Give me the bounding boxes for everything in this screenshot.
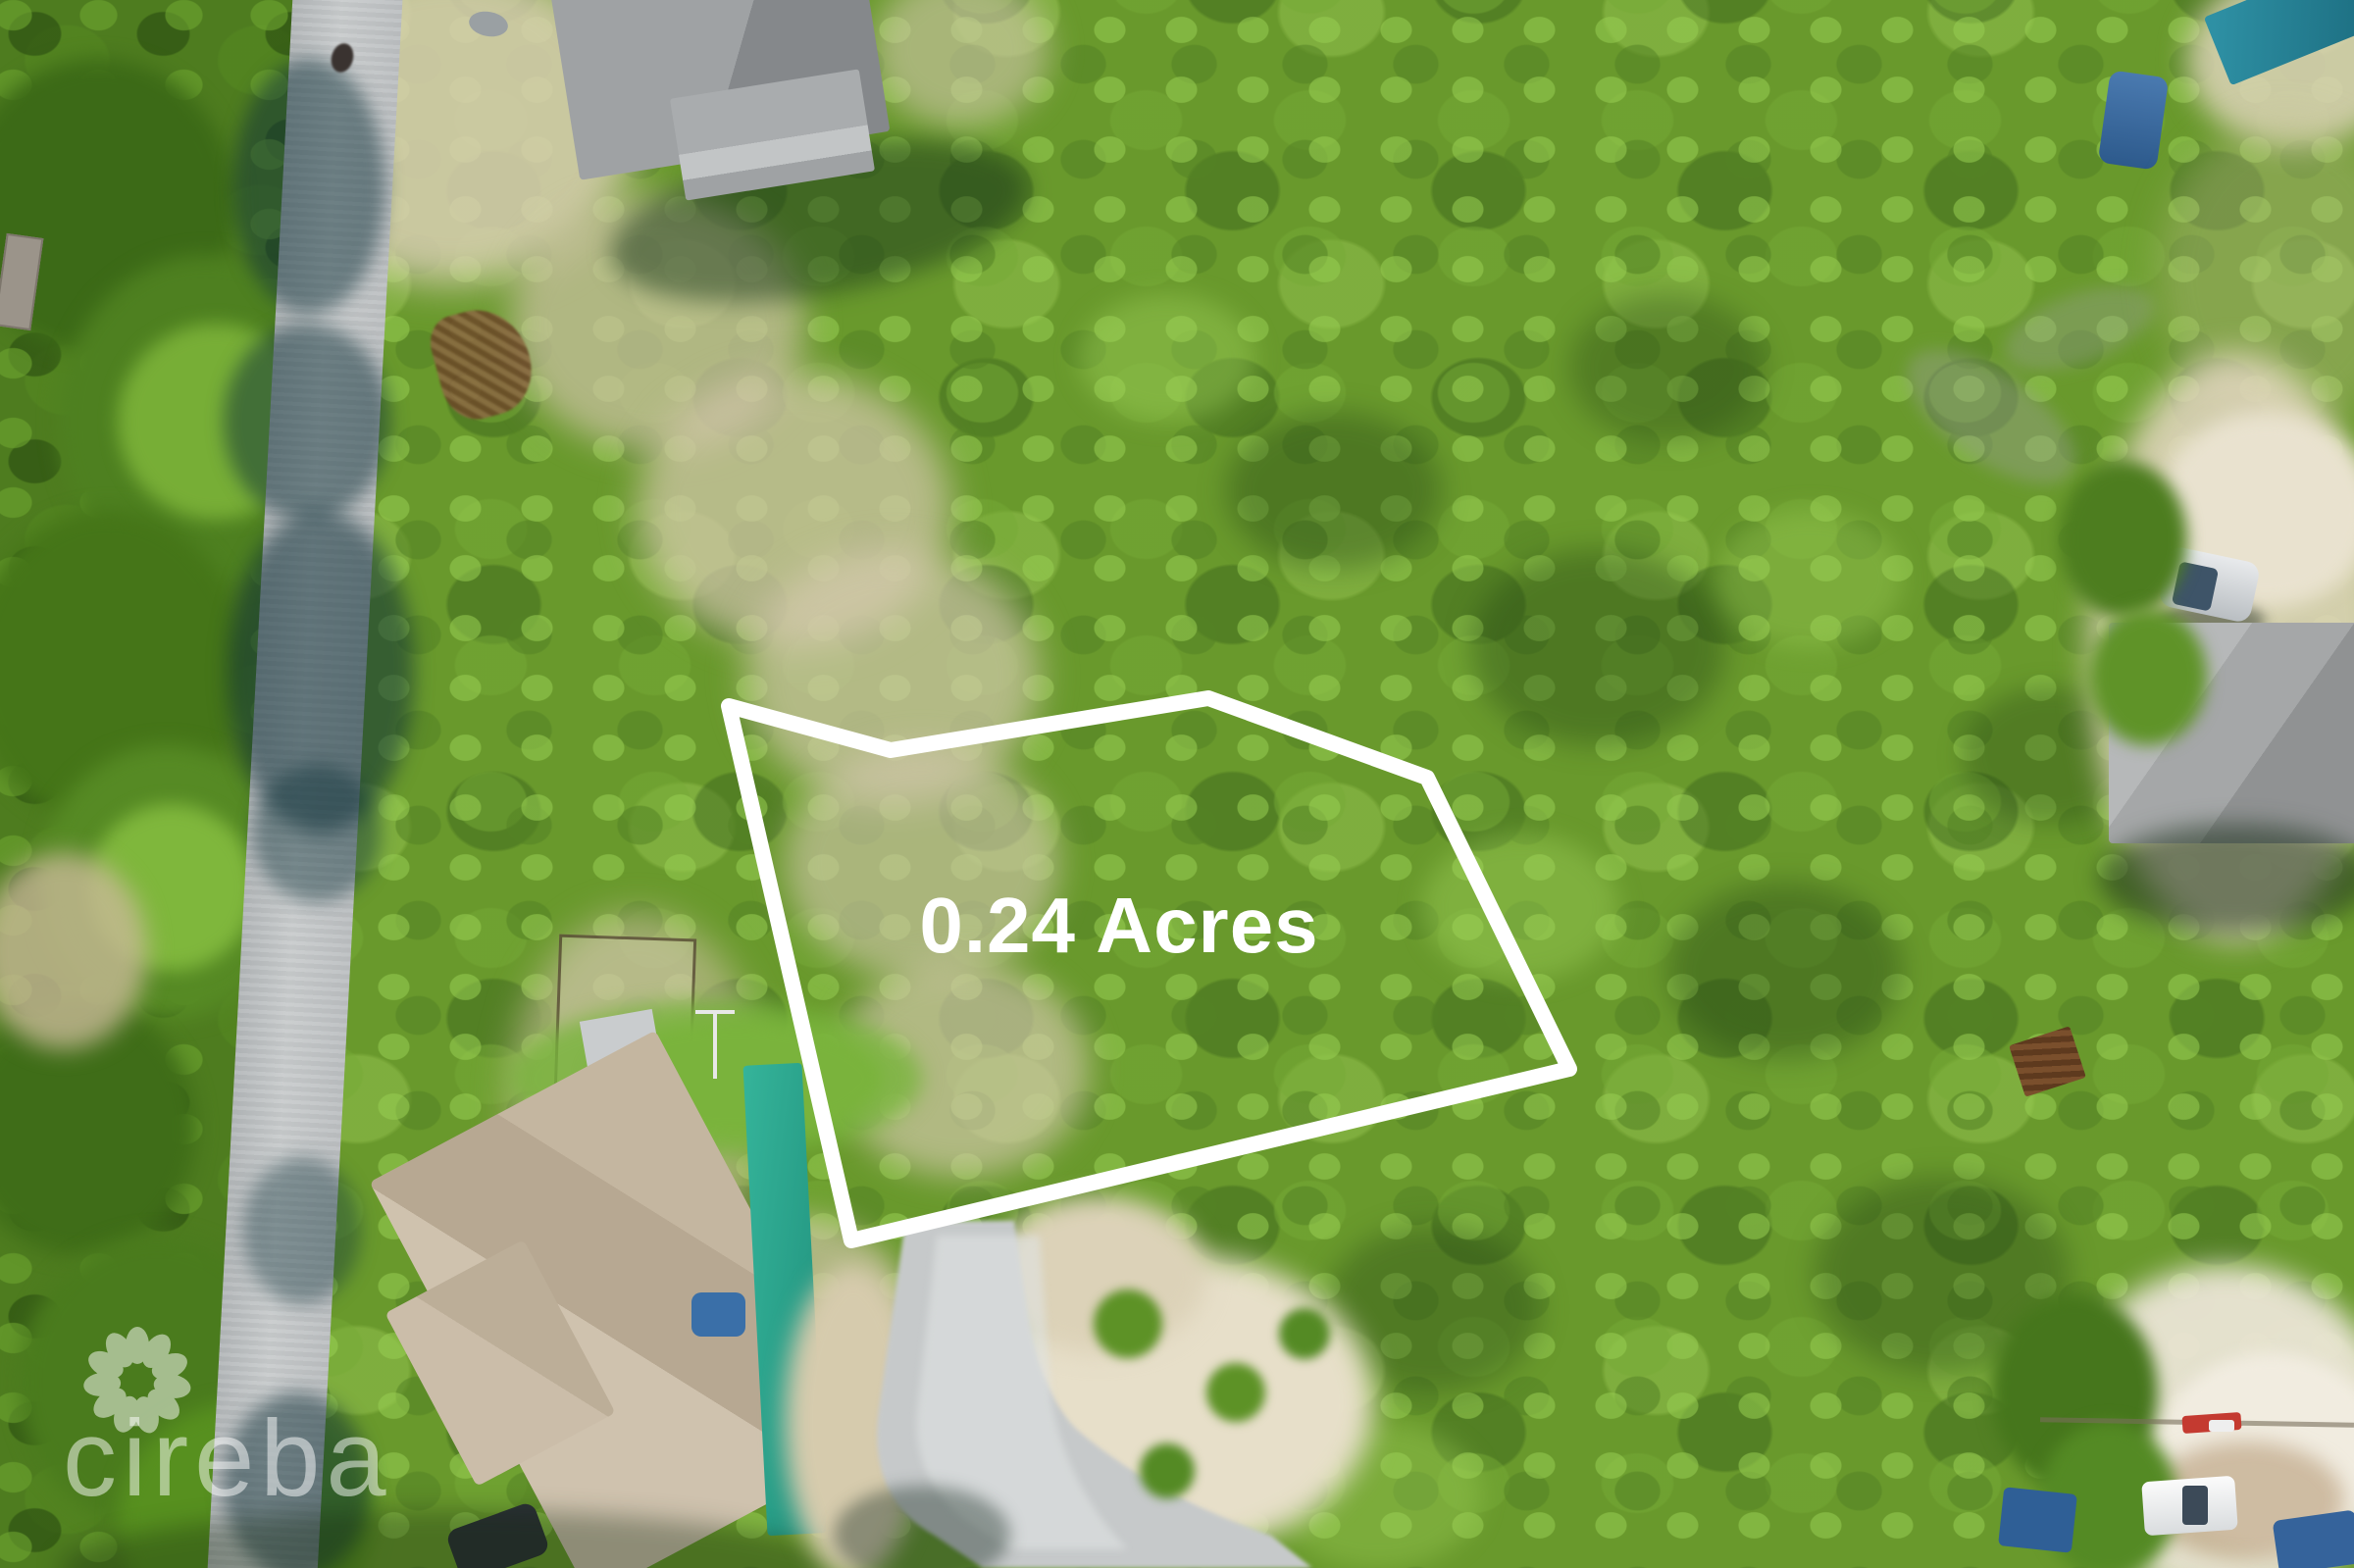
overlay-svg bbox=[0, 0, 2354, 1568]
shoulder-bush bbox=[1206, 1363, 1265, 1422]
shoulder-bush bbox=[1140, 1443, 1195, 1498]
cireba-watermark-text: cireba bbox=[63, 1396, 392, 1521]
lot-area-label: 0.24 Acres bbox=[919, 881, 1318, 971]
aerial-photo: 0.24 Acres cireba bbox=[0, 0, 2354, 1568]
shoulder-bush bbox=[1279, 1308, 1330, 1359]
shoulder-bush bbox=[1094, 1290, 1162, 1358]
